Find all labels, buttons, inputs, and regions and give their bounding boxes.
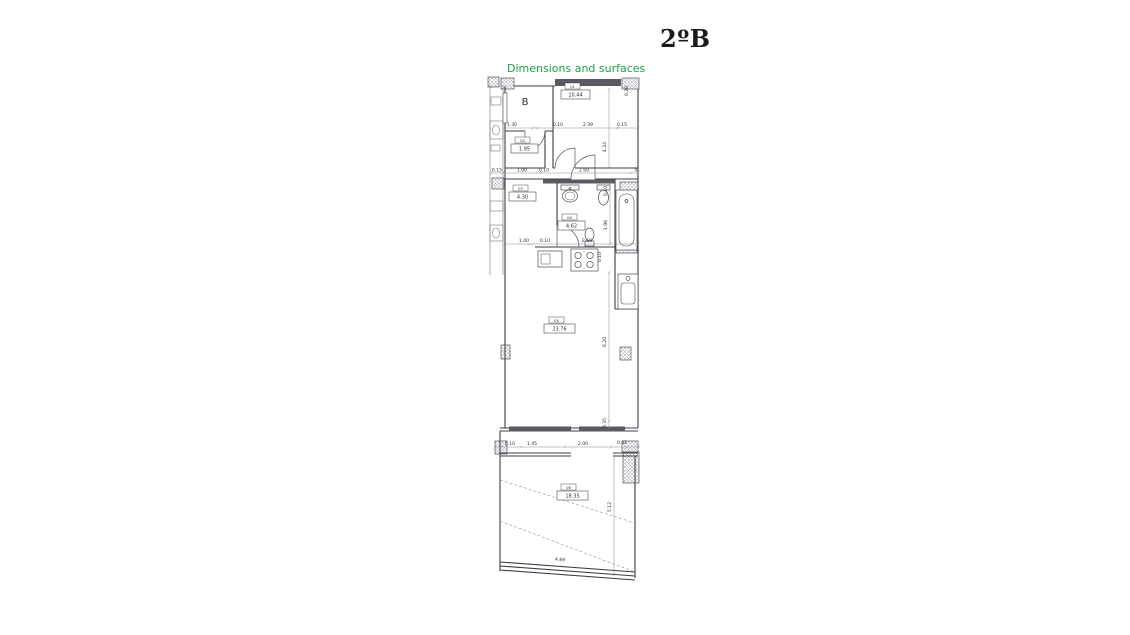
floor-plan-svg: 1.30 0.10 2.39 0.15 0.15 1.00 0.10 2.69 … [485, 75, 650, 590]
room-area: 4.62 [566, 224, 577, 230]
kitchen-counter-icon [538, 251, 562, 267]
room-area: 1.95 [519, 147, 530, 153]
stove-icon [571, 249, 598, 271]
room-code: 01 [570, 84, 575, 89]
page: 2ºB Dimensions and surfaces [0, 0, 1130, 635]
room-code: 05 [554, 318, 559, 323]
dim-label: 4.24 [602, 142, 608, 152]
block-label: B [522, 97, 529, 108]
kitchen-fixtures [538, 249, 638, 309]
dim-label: 5.12 [607, 502, 613, 512]
wall-dark-bands [509, 79, 625, 432]
dim-label: 1.45 [527, 441, 537, 447]
dim-label: 0.10 [505, 441, 515, 447]
room-area: 10.44 [568, 93, 582, 99]
room-labels: 01 10.44 02 1.95 03 4.30 04 4.62 [509, 83, 590, 500]
dim-label: 1.96 [603, 220, 609, 230]
room-code: 03 [518, 186, 523, 191]
room-code: 06 [566, 485, 571, 490]
dim-label: 0.10 [540, 238, 550, 244]
kitchen-sink-icon [618, 274, 638, 309]
plan-title: 2ºB [660, 24, 710, 53]
dim-label: 0.32 [617, 440, 627, 446]
room-label-05: 05 23.76 [544, 317, 575, 333]
dim-label: 0.10 [539, 168, 549, 174]
dim-label: 0.35 [602, 418, 608, 428]
dim-label: 0.15 [492, 168, 502, 174]
dim-label: 6.20 [602, 337, 608, 347]
dim-label: 0.10 [603, 186, 609, 196]
dim-label: 1.30 [507, 122, 517, 128]
dim-label: 1.00 [517, 168, 527, 174]
room-label-02: 02 1.95 [511, 137, 538, 153]
room-code: 04 [567, 215, 572, 220]
dim-label: 0.15 [617, 122, 627, 128]
washbasin-icon [561, 185, 579, 202]
room-label-06: 06 18.35 [557, 484, 588, 500]
room-code: 02 [520, 138, 525, 143]
dim-label: 0.26 [624, 86, 630, 96]
plan-subtitle: Dimensions and surfaces [507, 62, 645, 75]
dim-label: 2.69 [579, 168, 589, 174]
dim-label: 0.10 [553, 122, 563, 128]
dim-label: 2.00 [578, 441, 588, 447]
dim-label: 2.39 [583, 122, 593, 128]
dim-label: 1.00 [519, 238, 529, 244]
pillar-hatching [488, 77, 639, 483]
room-area: 4.30 [517, 195, 528, 201]
room-area: 18.35 [565, 494, 579, 500]
dim-label: 0.10 [597, 252, 603, 262]
room-label-03: 03 4.30 [509, 185, 536, 201]
dim-label: 2.69 [582, 238, 592, 244]
room-label-04: 04 4.62 [558, 214, 585, 230]
dim-label: 0 [635, 168, 638, 174]
bathtub-icon [616, 190, 637, 250]
dim-label: 4.69 [555, 557, 566, 564]
terrace-door-opening [571, 452, 613, 458]
window-icon [503, 93, 507, 123]
room-area: 23.76 [552, 327, 566, 333]
